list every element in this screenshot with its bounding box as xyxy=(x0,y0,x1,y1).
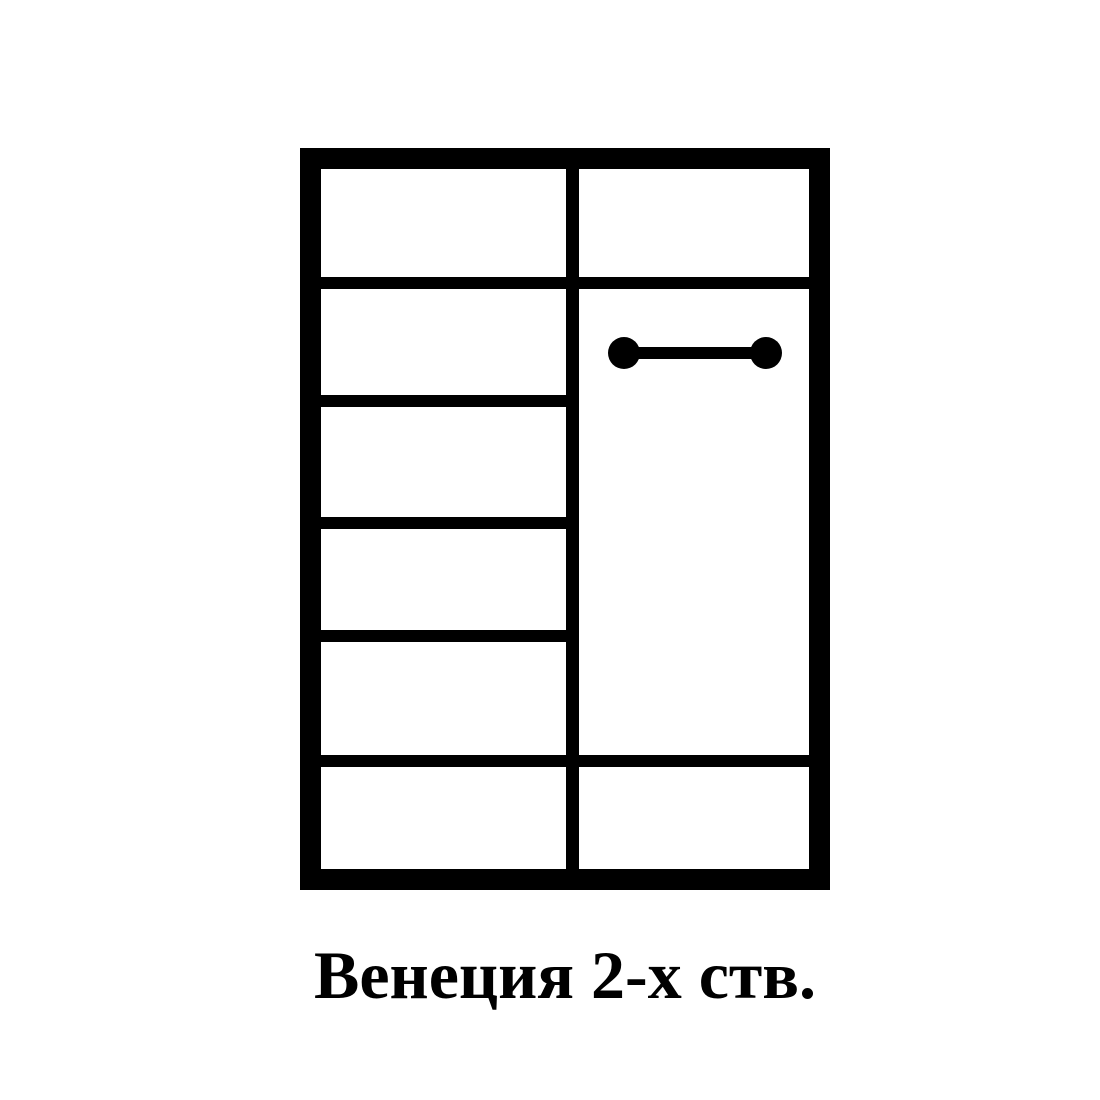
hanging-rod-icon xyxy=(608,337,782,369)
top-shelf-line xyxy=(321,277,809,289)
left-shelf-line-1 xyxy=(321,395,573,407)
wardrobe-diagram xyxy=(300,148,830,890)
left-shelf-line-2 xyxy=(321,517,573,529)
left-shelf-line-3 xyxy=(321,630,573,642)
rod-bar xyxy=(624,347,766,359)
page-background: Венеция 2-х ств. xyxy=(0,0,1100,1100)
rod-right-end-icon xyxy=(750,337,782,369)
diagram-caption: Венеция 2-х ств. xyxy=(300,938,830,1013)
bottom-shelf-line xyxy=(321,755,809,767)
